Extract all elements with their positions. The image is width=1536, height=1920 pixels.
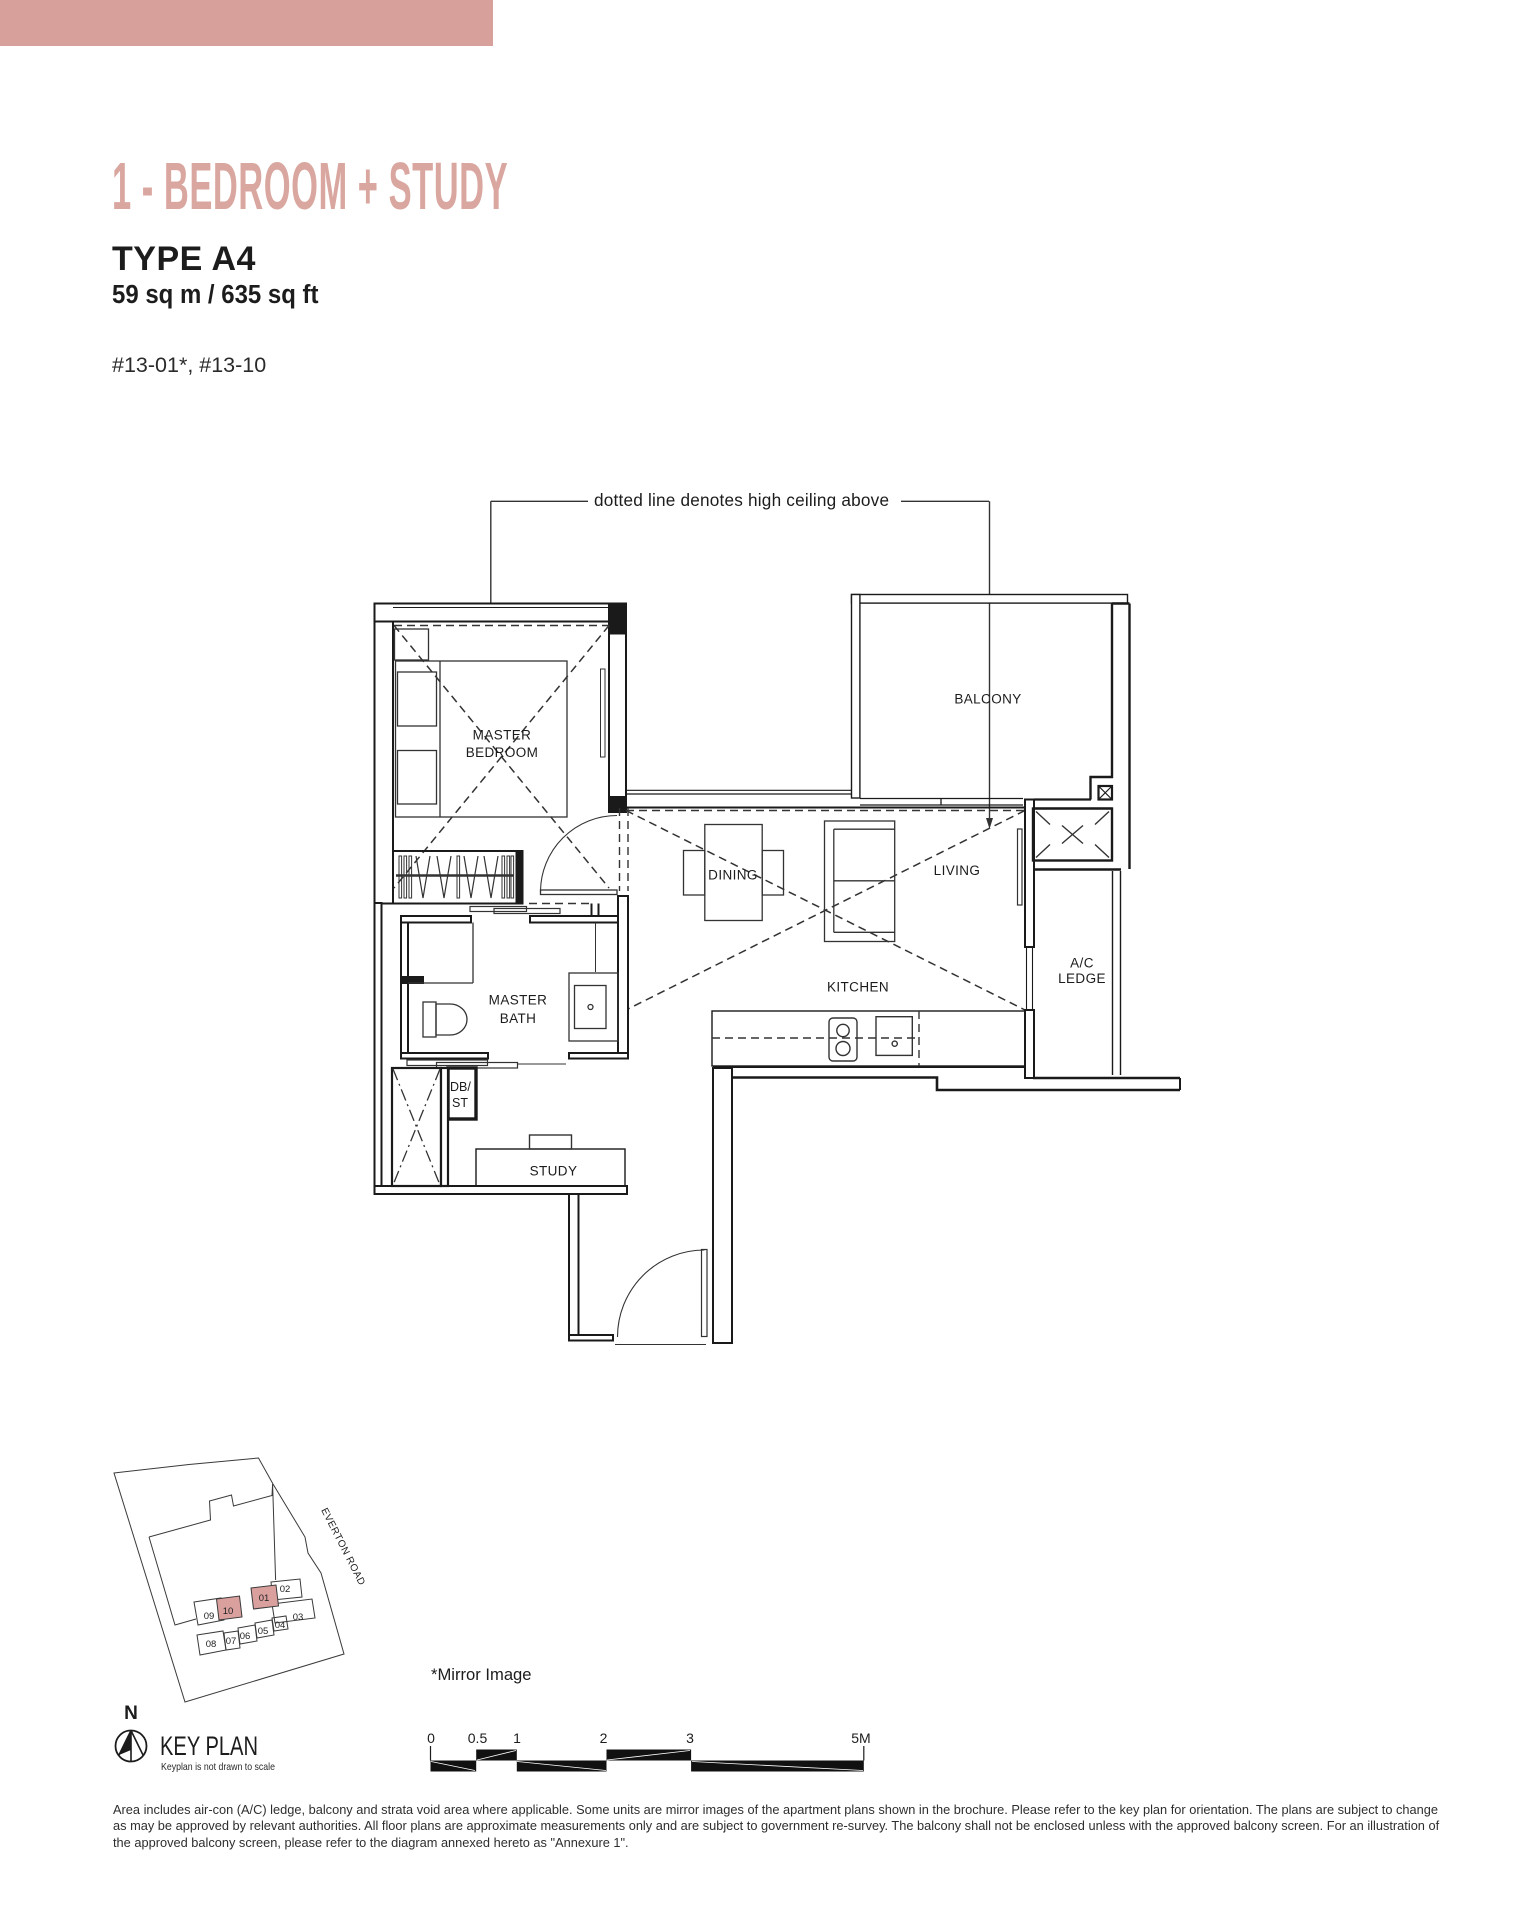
svg-text:MASTER: MASTER bbox=[473, 728, 532, 743]
svg-text:06: 06 bbox=[240, 1631, 251, 1642]
svg-text:DINING: DINING bbox=[708, 868, 758, 883]
svg-text:0: 0 bbox=[427, 1730, 435, 1746]
svg-text:STUDY: STUDY bbox=[530, 1164, 578, 1179]
svg-text:0.5: 0.5 bbox=[468, 1730, 488, 1746]
svg-text:5M: 5M bbox=[851, 1730, 870, 1746]
svg-text:dotted line denotes high ceili: dotted line denotes high ceiling above bbox=[594, 490, 889, 510]
svg-text:BALCONY: BALCONY bbox=[954, 692, 1021, 707]
svg-text:02: 02 bbox=[280, 1584, 291, 1595]
svg-text:05: 05 bbox=[258, 1626, 269, 1637]
svg-text:BEDROOM: BEDROOM bbox=[466, 745, 539, 760]
svg-text:KEY PLAN: KEY PLAN bbox=[160, 1731, 258, 1761]
svg-text:DB/: DB/ bbox=[450, 1080, 471, 1094]
svg-text:3: 3 bbox=[686, 1730, 694, 1746]
svg-text:03: 03 bbox=[293, 1612, 304, 1623]
svg-text:1: 1 bbox=[513, 1730, 521, 1746]
svg-text:10: 10 bbox=[223, 1606, 234, 1617]
svg-text:2: 2 bbox=[600, 1730, 608, 1746]
svg-text:09: 09 bbox=[204, 1611, 215, 1622]
svg-text:04: 04 bbox=[275, 1620, 286, 1631]
svg-text:BATH: BATH bbox=[500, 1011, 537, 1026]
svg-text:A/C: A/C bbox=[1070, 956, 1094, 971]
svg-text:08: 08 bbox=[206, 1639, 217, 1650]
svg-text:MASTER: MASTER bbox=[489, 993, 548, 1008]
svg-text:LIVING: LIVING bbox=[934, 863, 981, 878]
svg-text:EVERTON ROAD: EVERTON ROAD bbox=[318, 1506, 367, 1587]
svg-text:01: 01 bbox=[259, 1593, 270, 1604]
svg-text:N: N bbox=[124, 1703, 138, 1724]
svg-text:*Mirror Image: *Mirror Image bbox=[431, 1665, 532, 1684]
svg-text:LEDGE: LEDGE bbox=[1058, 971, 1106, 986]
svg-text:ST: ST bbox=[452, 1096, 468, 1110]
svg-text:Keyplan is not drawn to scale: Keyplan is not drawn to scale bbox=[161, 1761, 275, 1773]
svg-text:07: 07 bbox=[226, 1636, 237, 1647]
svg-text:KITCHEN: KITCHEN bbox=[827, 980, 889, 995]
